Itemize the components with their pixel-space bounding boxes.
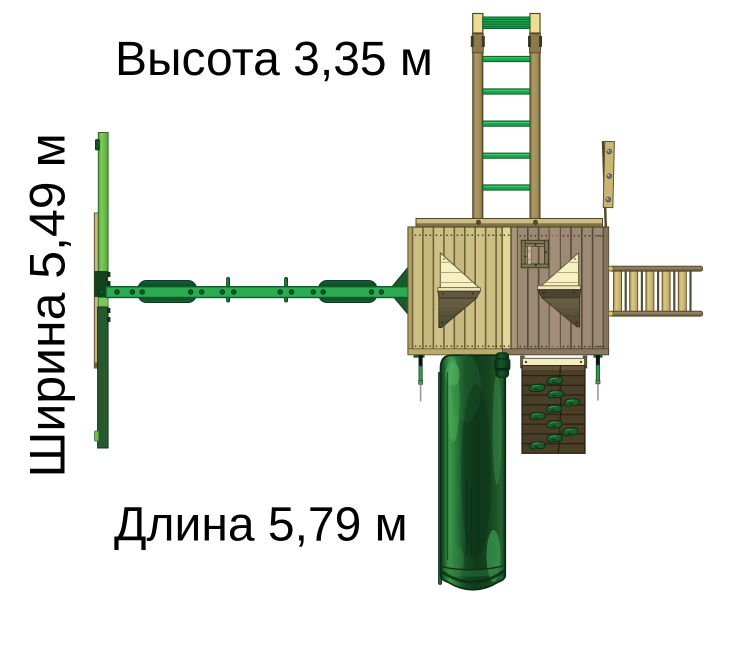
svg-text:Длина 5,79 м: Длина 5,79 м xyxy=(114,499,408,552)
svg-text:Ширина 5,49 м: Ширина 5,49 м xyxy=(20,133,76,477)
svg-text:Высота 3,35 м: Высота 3,35 м xyxy=(115,33,433,86)
